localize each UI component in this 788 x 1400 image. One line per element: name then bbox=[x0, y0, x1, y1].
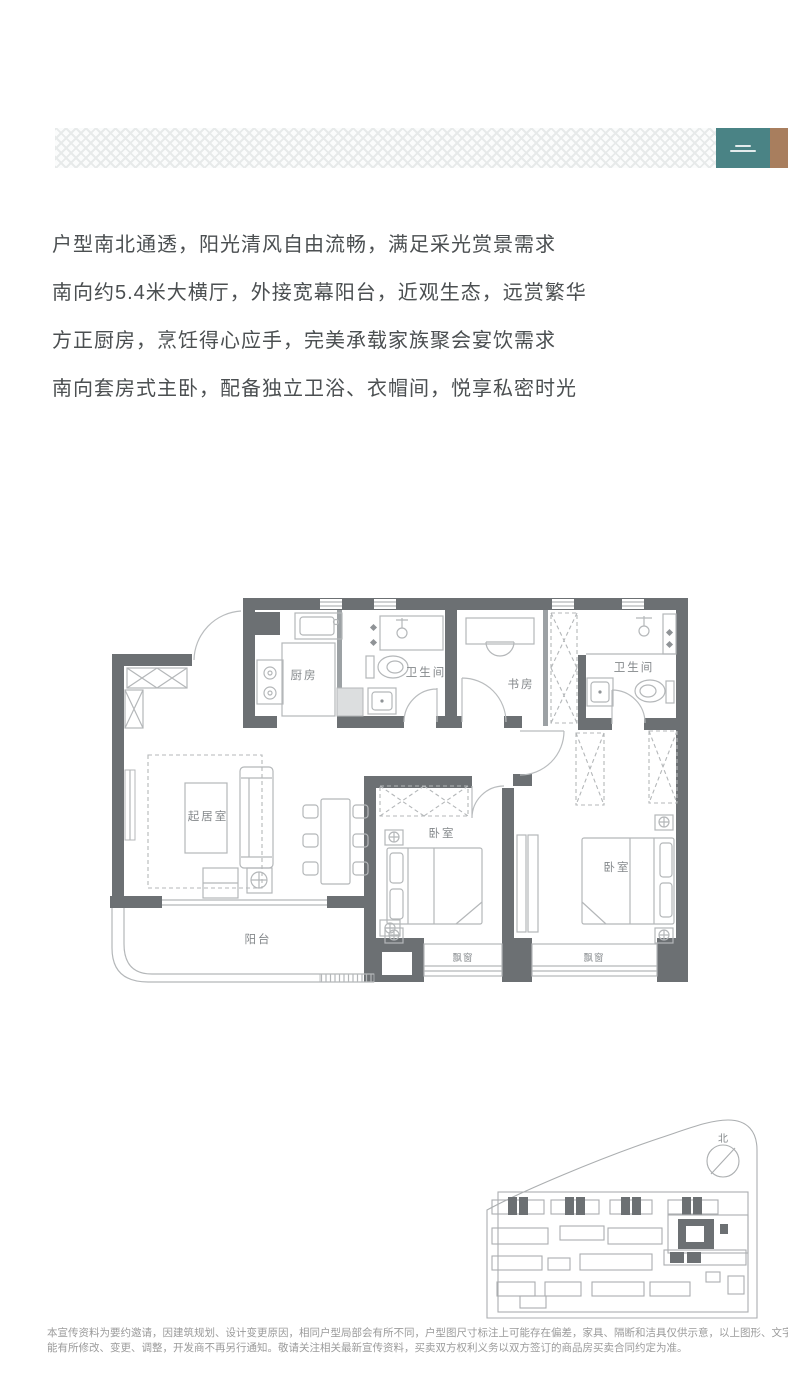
room-label-bath2: 卫生间 bbox=[614, 660, 655, 674]
nightstand-icon bbox=[385, 830, 403, 845]
bedroom1-door-arc bbox=[472, 786, 504, 818]
bath2-fixtures bbox=[586, 614, 676, 706]
bath2-sink-icon bbox=[587, 678, 613, 706]
bath1-counter bbox=[380, 616, 443, 650]
wardrobe-icon bbox=[576, 733, 604, 805]
dining-table-icon bbox=[303, 799, 368, 884]
disclaimer-line: 本宣传资料为要约邀请，因建筑规划、设计变更原因，相同户型局部会有所不同，户型图尺… bbox=[47, 1326, 757, 1341]
disclaimer: 本宣传资料为要约邀请，因建筑规划、设计变更原因，相同户型局部会有所不同，户型图尺… bbox=[47, 1326, 757, 1356]
shower-icon bbox=[636, 616, 652, 636]
kitchen-sink-icon bbox=[295, 613, 342, 639]
closet-panel bbox=[528, 835, 538, 932]
site-plan: 北 bbox=[487, 1120, 757, 1318]
room-label-kitchen: 厨房 bbox=[291, 669, 318, 682]
wardrobe-icon bbox=[380, 786, 468, 816]
living-furniture bbox=[148, 755, 400, 936]
wardrobe-icon bbox=[649, 731, 677, 803]
bath1-door-arc bbox=[404, 688, 437, 722]
closet-panel bbox=[517, 835, 526, 932]
desk-icon bbox=[466, 618, 534, 644]
toilet-icon bbox=[635, 680, 674, 703]
north-compass-icon: 北 bbox=[707, 1133, 739, 1177]
room-label-bath1: 卫生间 bbox=[406, 665, 447, 679]
room-label-bay1: 飘窗 bbox=[452, 952, 473, 964]
wardrobe-icon bbox=[551, 613, 577, 723]
entry-closet-icon bbox=[125, 668, 187, 728]
living-window bbox=[125, 770, 135, 840]
room-label-balcony: 阳台 bbox=[245, 932, 272, 946]
room-label-bedroom2: 卧室 bbox=[604, 860, 631, 874]
room-label-bedroom1: 卧室 bbox=[429, 826, 456, 840]
side-table-icon bbox=[247, 868, 272, 893]
tv-bench-icon bbox=[203, 868, 238, 898]
bed-icon bbox=[582, 838, 674, 924]
site-boundary bbox=[487, 1120, 757, 1318]
sofa-icon bbox=[240, 767, 273, 868]
study-door-arc bbox=[462, 678, 506, 722]
balcony-outline bbox=[112, 900, 374, 982]
suite-door-arc bbox=[520, 731, 564, 775]
floor-plan-svg: 厨房 卫生间 书房 卫生间 起居室 阳台 卧室 卧室 飘窗 飘窗 北 bbox=[0, 0, 788, 1400]
disclaimer-line: 能有所修改、变更、调整，开发商不再另行通知。敬请关注相关最新宣传资料，买卖双方权… bbox=[47, 1341, 757, 1356]
site-buildings bbox=[492, 1197, 748, 1308]
entrance-door-arc bbox=[194, 611, 241, 660]
page: 户型南北通透，阳光清风自由流畅，满足采光赏景需求 南向约5.4米大横厅，外接宽幕… bbox=[0, 0, 788, 1400]
bath1-fixtures bbox=[366, 616, 443, 714]
bath1-sink-icon bbox=[368, 688, 396, 714]
toilet-icon bbox=[366, 656, 408, 678]
room-label-living: 起居室 bbox=[188, 809, 229, 823]
floor-plan: 厨房 卫生间 书房 卫生间 起居室 阳台 卧室 卧室 飘窗 飘窗 bbox=[110, 598, 688, 982]
study-fixtures bbox=[466, 613, 577, 723]
bath2-door-arc bbox=[612, 690, 645, 724]
nightstand-icon bbox=[655, 815, 673, 830]
north-label: 北 bbox=[718, 1133, 728, 1145]
stove-icon bbox=[257, 660, 283, 704]
room-label-bay2: 飘窗 bbox=[583, 952, 604, 964]
kitchen-cabinet bbox=[337, 688, 363, 716]
room-label-study: 书房 bbox=[508, 678, 535, 691]
bed-icon bbox=[387, 848, 482, 924]
bedroom2-furniture bbox=[517, 731, 677, 976]
